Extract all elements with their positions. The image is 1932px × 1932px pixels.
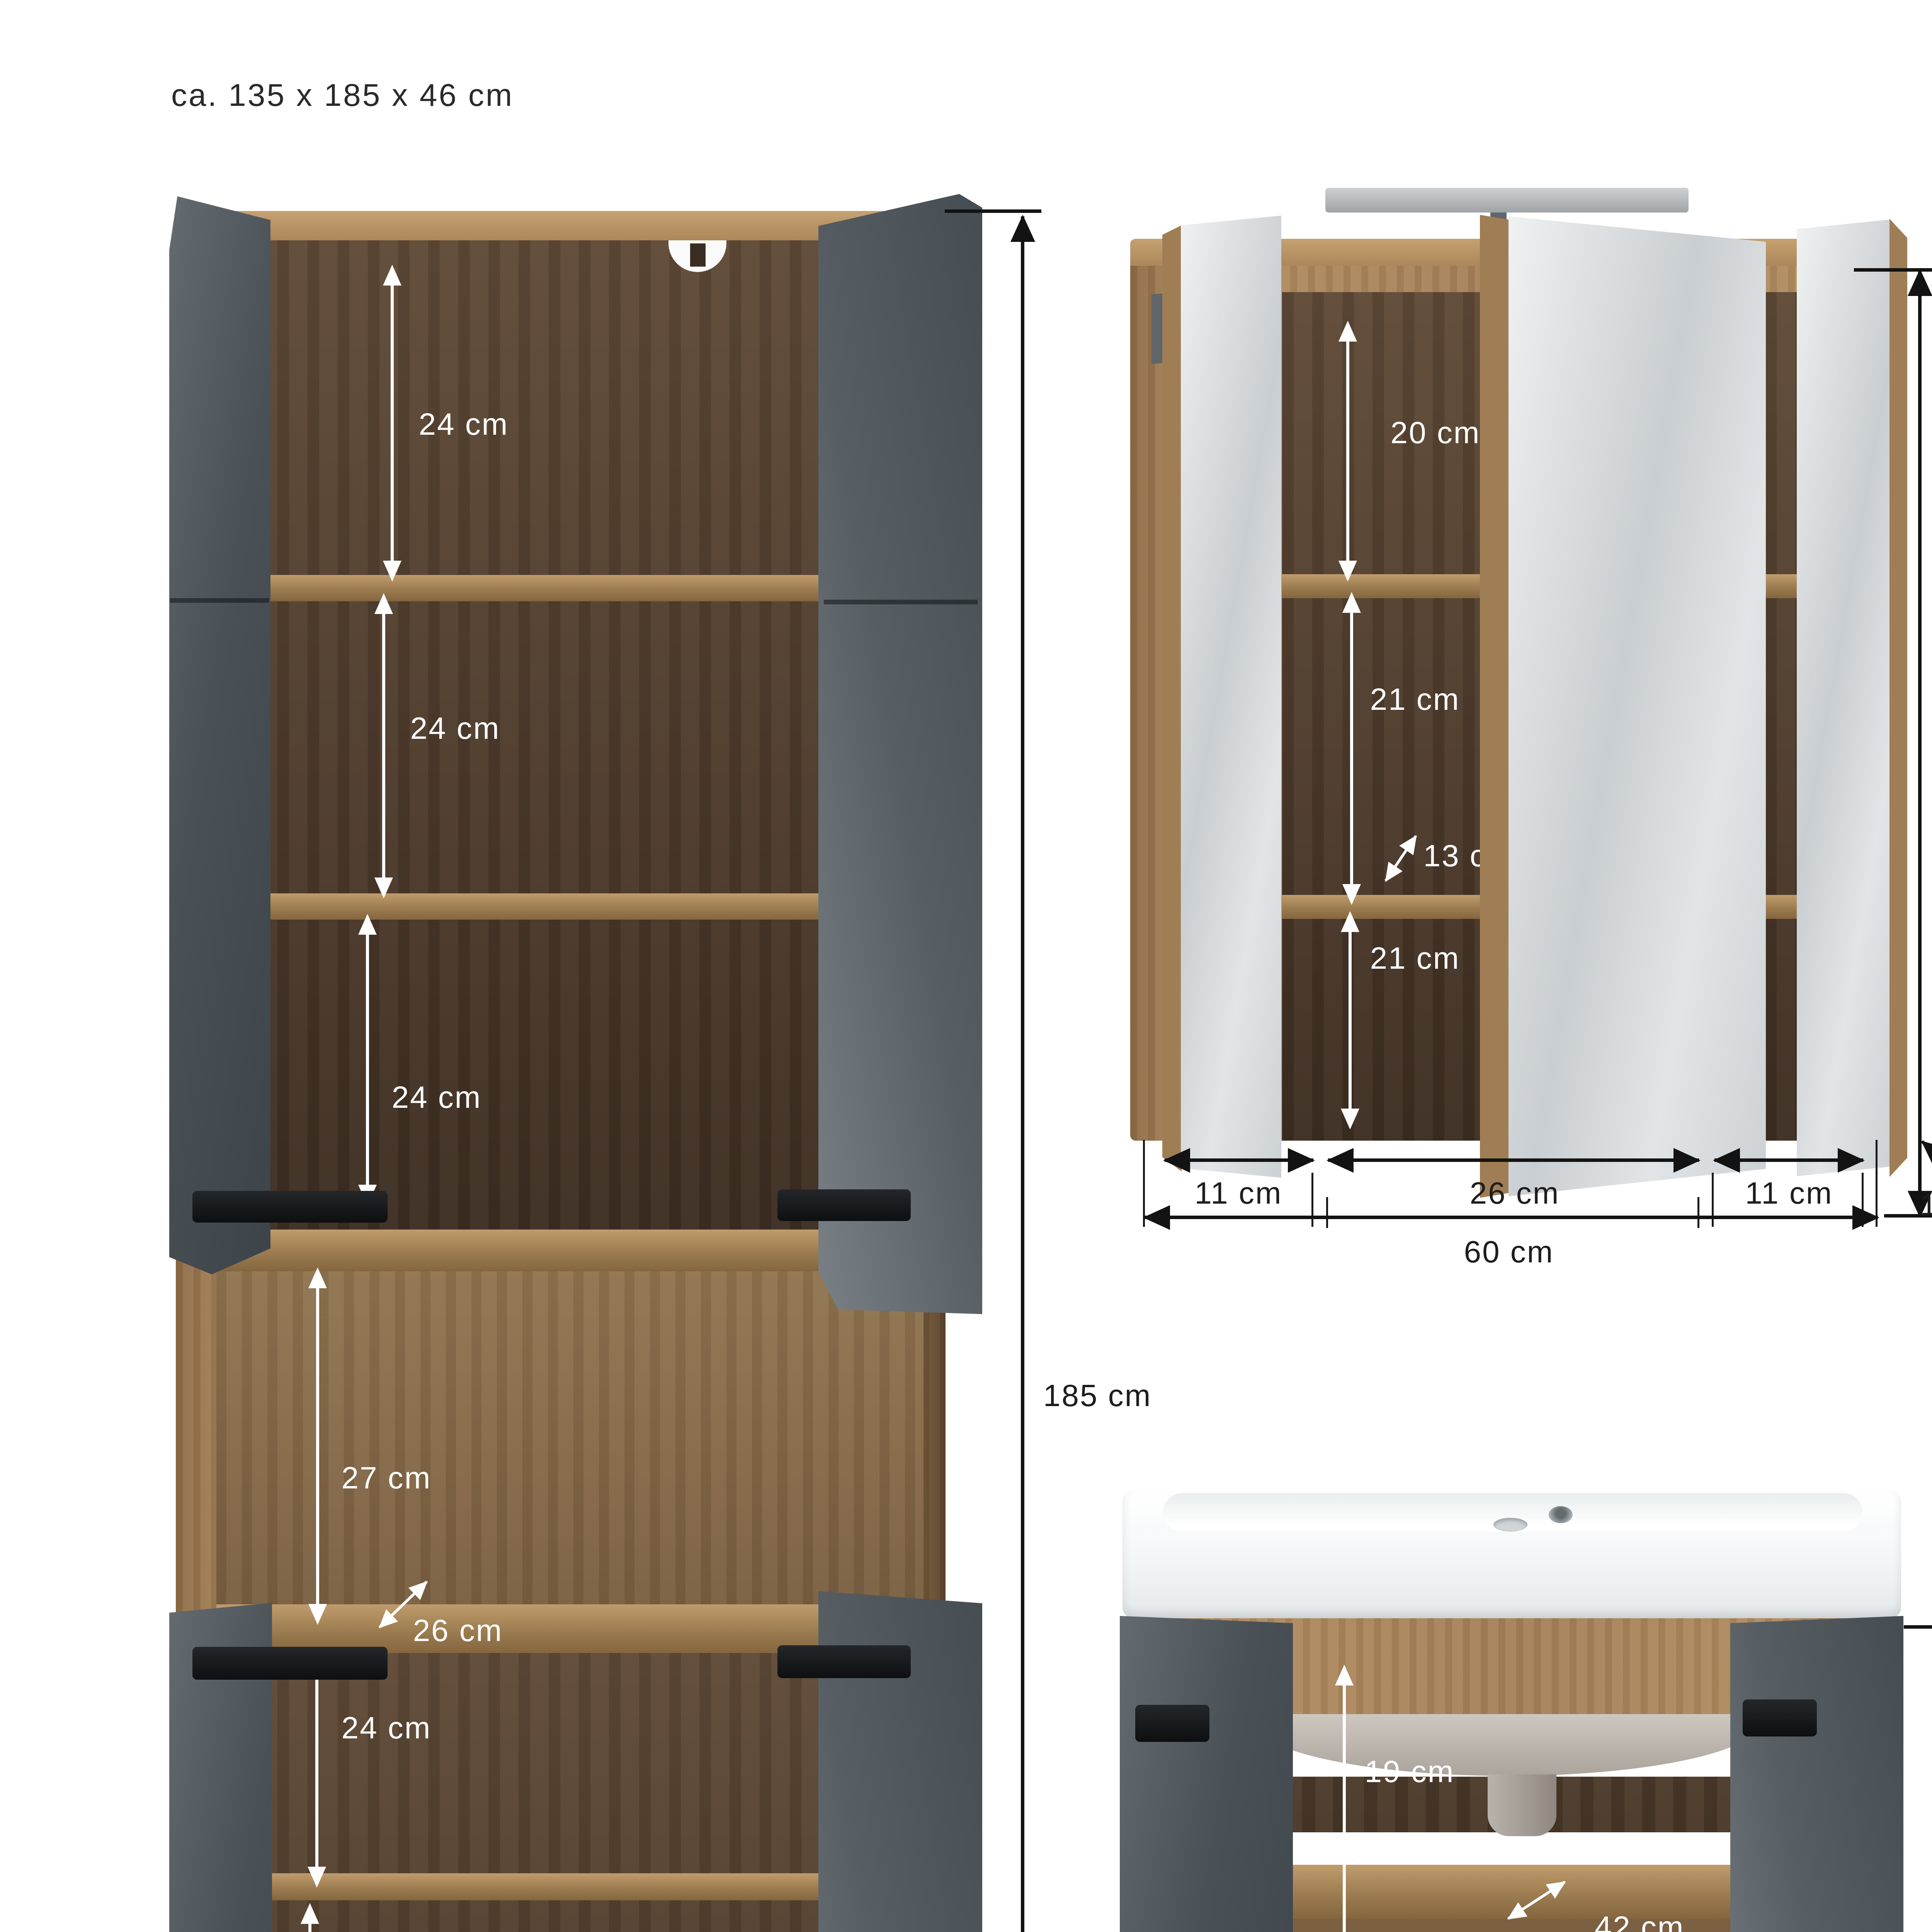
led-light-bar xyxy=(1325,188,1689,213)
tall-cabinet-upper-interior xyxy=(247,240,873,1230)
extension-line xyxy=(1712,1173,1714,1227)
extension-line xyxy=(1862,1173,1864,1227)
dim-arrow-left-11 xyxy=(1165,1158,1313,1162)
arrow-compartment2 xyxy=(1350,611,1353,886)
door-handle xyxy=(777,1189,911,1221)
extension-line xyxy=(1311,1173,1313,1227)
mirror-cabinet-shelf xyxy=(1765,574,1811,598)
tall-cabinet-side-panel xyxy=(903,232,946,1932)
ceramic-basin xyxy=(1122,1490,1901,1618)
mirror-door-edge xyxy=(1162,216,1182,1176)
vanity-right-door xyxy=(1730,1616,1903,1932)
mirror-door-center xyxy=(1509,216,1766,1196)
dim-label-shelf2: 24 cm xyxy=(410,713,500,744)
overall-dimensions-title: ca. 135 x 185 x 46 cm xyxy=(171,77,514,114)
dim-arrow-depth-18 xyxy=(1921,1140,1932,1196)
vanity-interior xyxy=(1209,1777,1811,1932)
dim-label-compartment3: 21 cm xyxy=(1370,943,1460,974)
arrow-niche-height xyxy=(316,1287,319,1605)
mirror-cabinet-illustration: 20 cm 21 cm 13 cm 21 cm 70 cm 11 cm 26 c… xyxy=(0,0,1932,1932)
tall-cabinet-upper-left-door xyxy=(169,196,270,1274)
arrow-compartment1 xyxy=(1346,340,1349,562)
dim-label-shelf4: 24 cm xyxy=(342,1713,432,1743)
led-light-stem xyxy=(1490,213,1507,240)
dim-arrow-height-185 xyxy=(1021,216,1024,1932)
arrow-shelf3-height xyxy=(366,933,369,1186)
faucet-hole xyxy=(1549,1506,1573,1523)
cable-hook xyxy=(690,243,706,267)
vanity-shelf-top xyxy=(1209,1865,1811,1919)
extension-line xyxy=(1697,1197,1699,1228)
mirror-cabinet-shelf xyxy=(1282,574,1485,598)
furniture-dimension-diagram: ca. 135 x 185 x 46 cm 24 cm 24 cm 24 cm … xyxy=(0,0,1932,1932)
wall-mount-bracket xyxy=(1851,291,1882,364)
tall-cabinet-upper-right-door xyxy=(818,194,982,1335)
dim-label-width: 60 cm xyxy=(1464,1236,1554,1267)
arrow-niche-depth xyxy=(379,1581,428,1628)
open-back-gap xyxy=(1209,1832,1811,1865)
dim-label-right-width: 11 cm xyxy=(1745,1178,1833,1209)
door-handle xyxy=(777,1645,911,1678)
dim-label-shelf3: 24 cm xyxy=(392,1082,482,1113)
dim-tick xyxy=(1884,1214,1932,1218)
tall-cabinet-top-panel xyxy=(176,211,946,241)
tall-cabinet-illustration: 24 cm 24 cm 24 cm 27 cm 26 cm 24 cm 24 c… xyxy=(0,0,1932,1932)
wall-mount-bracket xyxy=(1151,291,1182,364)
tall-cabinet-shelf xyxy=(247,893,873,920)
door-groove xyxy=(170,598,269,603)
mirror-cabinet-shelf xyxy=(1282,895,1485,919)
arrow-shelf5-height xyxy=(308,1922,311,1932)
dim-label-niche-height: 27 cm xyxy=(342,1463,432,1493)
dim-label-inner-depth: 42 cm xyxy=(1595,1912,1685,1932)
dim-label-center-width: 26 cm xyxy=(1470,1178,1560,1209)
tall-cabinet-shelf xyxy=(247,575,873,601)
extension-line xyxy=(1143,1140,1145,1227)
dim-label-compartment1: 20 cm xyxy=(1391,417,1481,448)
mirror-cabinet-top-rail xyxy=(1130,239,1886,266)
arrow-shelf2-height xyxy=(382,612,385,879)
vanity-cabinet-illustration: 19 cm 42 cm 24 cm 53 cm 56 cm 60 cm 46 c… xyxy=(0,0,1932,1932)
cable-notch xyxy=(668,240,726,272)
vanity-top-rail xyxy=(1143,1618,1873,1714)
arrow-compartment3 xyxy=(1349,930,1352,1110)
dim-label-depth: 18 cm xyxy=(1920,1189,1932,1220)
mirror-door-edge xyxy=(1480,215,1509,1198)
dim-label-shelf1: 24 cm xyxy=(419,409,509,440)
door-handle xyxy=(1135,1705,1209,1742)
tall-cabinet-lower-right-door xyxy=(818,1591,982,1932)
extension-line xyxy=(1326,1197,1328,1228)
mirror-cabinet-interior xyxy=(1282,292,1485,1141)
basin-inner-rim xyxy=(1163,1493,1862,1532)
dim-arrow-height-70 xyxy=(1918,270,1922,1216)
mirror-cabinet-shelf xyxy=(1765,895,1811,919)
dim-arrow-width-60 xyxy=(1145,1216,1878,1219)
tall-cabinet-lower-interior xyxy=(247,1653,873,1932)
basin-underside xyxy=(1251,1714,1764,1776)
dim-tick xyxy=(1854,268,1932,272)
arrow-basin-clearance xyxy=(1343,1684,1346,1932)
siphon-drain xyxy=(1488,1774,1556,1836)
arrow-shelf4-height xyxy=(315,1673,318,1868)
dim-tick xyxy=(945,209,1041,213)
mirror-door-edge xyxy=(1889,219,1907,1177)
dim-label-inner-depth: 13 cm xyxy=(1423,840,1514,871)
mirror-cabinet-interior-right xyxy=(1765,292,1811,1141)
overflow-hole xyxy=(1493,1518,1527,1532)
dim-label-niche-depth: 26 cm xyxy=(413,1615,503,1646)
door-handle xyxy=(192,1647,388,1680)
dim-label-compartment2: 21 cm xyxy=(1370,684,1460,715)
dim-arrow-right-11 xyxy=(1714,1158,1863,1162)
door-groove xyxy=(824,600,978,604)
tall-cabinet-lower-left-door xyxy=(169,1603,272,1932)
arrow-inner-depth xyxy=(1507,1881,1566,1920)
arrow-inner-depth xyxy=(1384,835,1417,881)
mirror-door-left xyxy=(1181,216,1281,1178)
mirror-cabinet-carcass xyxy=(1130,239,1886,1141)
arrow-shelf1-height xyxy=(391,284,394,562)
door-handle xyxy=(1743,1699,1817,1736)
tall-cabinet-carcass xyxy=(176,211,946,1932)
dim-tick xyxy=(1904,1625,1932,1629)
extension-line xyxy=(1876,1140,1878,1227)
vanity-shelf-edge xyxy=(1209,1919,1811,1932)
tall-cabinet-open-niche xyxy=(216,1271,923,1604)
dim-arrow-center-26 xyxy=(1328,1158,1699,1162)
mirror-door-right xyxy=(1797,219,1890,1176)
dim-label-left-width: 11 cm xyxy=(1195,1178,1282,1209)
dim-label-basin-clearance: 19 cm xyxy=(1365,1756,1455,1787)
vanity-left-door xyxy=(1120,1616,1293,1932)
tall-cabinet-divider xyxy=(216,1230,923,1271)
dim-label-height: 185 cm xyxy=(1043,1380,1151,1411)
door-handle xyxy=(192,1191,388,1223)
tall-cabinet-shelf xyxy=(247,1873,873,1900)
tall-cabinet-niche-floor xyxy=(216,1604,923,1653)
